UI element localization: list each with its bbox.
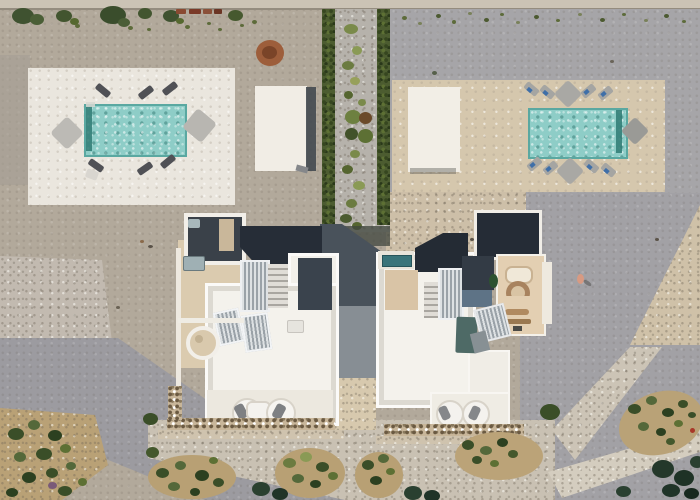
debris-4: [470, 238, 474, 241]
strip-bush-dark: [345, 128, 358, 140]
strip-plant-5: [344, 91, 353, 99]
tree-dark-bc-4: [424, 490, 440, 500]
villa-a-wall-mid: [178, 318, 244, 323]
dot-plant-9: [534, 15, 539, 19]
strip-plant-3: [342, 61, 354, 70]
bush-c2b-4: [386, 468, 395, 475]
villa-a-stone-step: [158, 430, 344, 439]
shrub-7: [240, 24, 244, 27]
bush-c3-4: [472, 456, 482, 464]
bush-c2b-3: [370, 476, 382, 485]
bush-c2-2: [300, 452, 312, 462]
villa-a-courtyard-dark: [298, 258, 332, 310]
aerial-photo-villa-complex: Aerial drone photo of a twin white-villa…: [0, 0, 700, 500]
villa-a-outdoor-kitchen: [183, 256, 205, 271]
tree-9: [176, 18, 184, 24]
pool-left-ladder: [86, 102, 95, 107]
debris-1: [140, 240, 144, 243]
tree-dark-bc-1: [252, 482, 270, 496]
bush-bl-8: [46, 468, 58, 478]
debris-2: [148, 245, 153, 248]
bush-right-mid: [540, 404, 560, 420]
roadside-item-2: [189, 9, 201, 14]
bush-isl-1: [628, 404, 641, 414]
bush-bl-11: [58, 486, 72, 496]
canopy-right-shadow: [410, 168, 456, 174]
villa-b-terrace-item: [513, 326, 522, 331]
dot-plant-12: [600, 18, 605, 22]
roadside-item-3: [203, 9, 212, 14]
bush-isl-2: [646, 396, 657, 405]
pool-left-deep-edge: [86, 106, 92, 151]
tree-dark-bc-2: [272, 488, 288, 500]
dot-plant-1: [402, 16, 407, 20]
bush-c1-5: [168, 482, 180, 491]
villa-b-plant: [489, 274, 498, 288]
bush-c1-7: [209, 457, 218, 464]
bush-mid-2: [146, 447, 159, 458]
bush-bl-4: [14, 452, 26, 462]
shrub-4: [185, 25, 190, 29]
shrub-5: [207, 22, 211, 25]
bush-c3-1: [462, 440, 474, 450]
bush-c3-2: [480, 446, 492, 455]
villa-b-terrace-slot-1: [505, 309, 529, 315]
bush-bl-7: [22, 472, 36, 483]
dot-plant-2: [418, 22, 422, 25]
villa-b-frame-block: [474, 210, 542, 260]
bush-bl-2: [28, 420, 40, 430]
debris-5: [610, 60, 614, 63]
villa-a-roof-unit-2: [241, 312, 273, 352]
bush-c3-3: [497, 438, 508, 447]
bush-bl-3: [48, 430, 62, 441]
debris-3: [432, 71, 437, 75]
canopy-right: [408, 87, 460, 172]
dot-plant-6: [484, 18, 489, 22]
bush-c1-4: [213, 478, 224, 487]
garden-hedge-right: [377, 9, 390, 225]
strip-bush-round-2: [358, 129, 373, 143]
bush-c2b-2: [378, 454, 389, 463]
bush-c1-3: [195, 470, 209, 481]
strip-plant-8: [342, 165, 353, 174]
dot-plant-4: [452, 20, 456, 24]
garden-hedge-left: [322, 9, 335, 232]
bush-c2-6: [328, 472, 338, 480]
strip-plant-6: [358, 99, 366, 106]
villa-a-stone-left: [168, 386, 182, 420]
dot-plant-5: [468, 12, 472, 15]
bush-c1-6: [190, 488, 200, 496]
tree-corner-2: [674, 470, 694, 486]
bush-mid-1: [143, 413, 158, 425]
canopy-left: [255, 86, 307, 171]
dot-plant-3: [436, 14, 441, 18]
dot-plant-8: [516, 21, 520, 24]
bush-bl-10: [6, 488, 18, 497]
bush-bl-12: [78, 478, 87, 486]
bush-isl-7: [674, 420, 683, 427]
strip-bush-brown: [359, 112, 372, 124]
bush-c2-4: [292, 474, 304, 483]
villa-a-round-daybed: [186, 326, 220, 360]
concrete-left-edge: [0, 55, 30, 185]
villa-a-stairs: [268, 264, 288, 308]
shrub-2: [128, 26, 133, 30]
dot-plant-16: [682, 20, 686, 23]
villa-b-arch-base: [504, 296, 532, 308]
bush-isl-3: [662, 408, 674, 417]
shrub-8: [252, 20, 257, 24]
dot-plant-13: [622, 13, 626, 16]
villa-a-daybed-center: [195, 335, 203, 343]
flower-purple: [48, 482, 57, 489]
dot-plant-7: [500, 13, 504, 16]
strip-plant-2: [352, 46, 362, 55]
villa-a-skylight: [240, 260, 270, 312]
tree-10: [228, 10, 243, 21]
villa-b-wall-blue: [462, 290, 492, 307]
debris-7: [116, 306, 120, 309]
bush-bl-9: [66, 462, 76, 470]
strip-plant-9: [353, 181, 365, 190]
tree-7: [138, 8, 152, 19]
villa-a-roof-terrace-table: [188, 219, 200, 228]
bush-isl-6: [656, 428, 666, 436]
shrub-3: [147, 28, 151, 31]
canopy-left-shadow: [306, 87, 316, 171]
dot-plant-11: [578, 13, 582, 16]
tree-corner-6: [616, 486, 631, 497]
villa-b-courtyard-beige: [385, 270, 418, 310]
tree-dark-bc-3: [404, 486, 422, 500]
roadside-item-4: [214, 9, 222, 14]
tree-corner-5: [684, 488, 699, 499]
strip-plant-10: [346, 199, 357, 208]
tree-corner-1: [652, 460, 674, 478]
strip-plant-11: [340, 214, 352, 223]
tree-corner-3: [690, 456, 700, 468]
dot-plant-14: [644, 19, 648, 22]
bush-c2b-1: [362, 460, 374, 470]
bush-bl-6: [60, 444, 71, 453]
villa-a-roof-vent: [287, 320, 304, 333]
pool-left: [84, 104, 187, 157]
flower-red: [690, 428, 695, 433]
bush-c1-1: [156, 468, 169, 478]
villa-b-terrace-step: [542, 262, 552, 324]
strip-plant-1: [344, 24, 358, 34]
bush-c2-3: [316, 462, 329, 472]
bush-isl-9: [666, 438, 675, 445]
tree-2: [30, 14, 44, 25]
debris-6: [655, 238, 659, 241]
dot-plant-10: [556, 19, 560, 22]
shrub-1: [75, 24, 80, 28]
strip-plant-4: [350, 77, 360, 85]
tree-corner-4: [662, 484, 680, 497]
roadside-item-1: [176, 9, 186, 14]
villa-b-skylight: [438, 268, 464, 320]
pool-right: [528, 108, 628, 159]
bush-isl-4: [678, 400, 688, 408]
strip-plant-7: [350, 150, 360, 158]
bush-c2-5: [310, 480, 321, 488]
bush-bl-1: [8, 428, 24, 440]
dot-plant-15: [664, 14, 669, 18]
bush-isl-8: [688, 412, 696, 418]
bush-c1-2: [175, 461, 186, 470]
shrub-6: [218, 28, 222, 31]
bush-c3-5: [490, 460, 499, 467]
villa-b-plunge-pool: [382, 255, 412, 267]
bush-isl-5: [638, 422, 649, 431]
villa-a-roof-terrace-beige: [219, 219, 234, 251]
bush-bl-5: [36, 448, 52, 460]
person: [577, 274, 584, 284]
red-bush-core: [262, 46, 277, 59]
bush-c3-6: [508, 450, 518, 458]
bush-c2-1: [283, 458, 296, 468]
